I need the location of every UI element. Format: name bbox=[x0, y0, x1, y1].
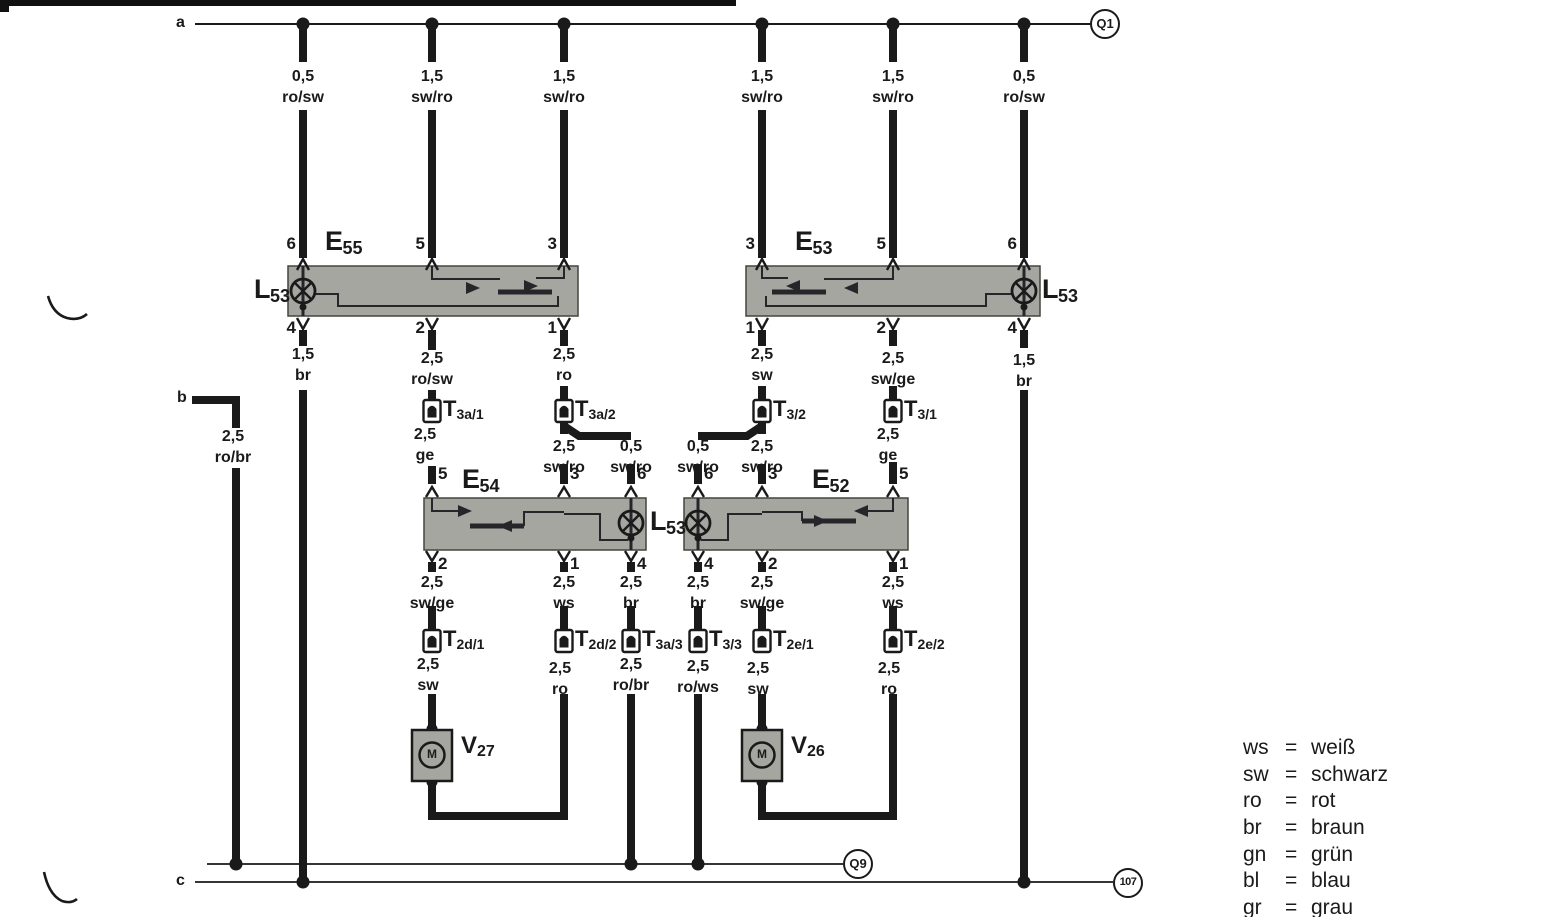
v27-label: V27 bbox=[461, 732, 495, 760]
pin-number: 5 bbox=[877, 234, 886, 254]
component-sub: 54 bbox=[480, 476, 500, 496]
component-sub: 55 bbox=[343, 238, 363, 258]
pin-number: 5 bbox=[438, 464, 447, 484]
wire-gauge: 2,5 bbox=[410, 572, 454, 593]
wire-gauge: 1,5 bbox=[411, 66, 453, 87]
wire-label: 2,5ge bbox=[877, 424, 899, 466]
wire-color: ro/sw bbox=[282, 87, 324, 108]
wire-label: 2,5sw bbox=[747, 658, 769, 700]
wire-color: br bbox=[1013, 371, 1035, 392]
switch-arrows bbox=[458, 280, 868, 532]
wire-color: ro/sw bbox=[1003, 87, 1045, 108]
legend-row: sw=schwarz bbox=[1243, 762, 1388, 789]
pin-number: 4 bbox=[637, 554, 646, 574]
t2d2-connector-symbol bbox=[556, 630, 573, 652]
pin-number: 1 bbox=[570, 554, 579, 574]
t2e2-connector-symbol bbox=[885, 630, 902, 652]
legend-row: gr=grau bbox=[1243, 895, 1388, 917]
wire-gauge: 2,5 bbox=[620, 572, 642, 593]
connector-sub: 3a/3 bbox=[655, 636, 682, 652]
wire-gauge: 0,5 bbox=[677, 436, 719, 457]
t33-connector-symbol bbox=[690, 630, 707, 652]
margin-mark-upper bbox=[48, 296, 87, 319]
wire-color: ge bbox=[877, 445, 899, 466]
component-prefix: E bbox=[812, 464, 830, 494]
wire-label: 2,5ro bbox=[878, 658, 900, 700]
wire-gauge: 0,5 bbox=[282, 66, 324, 87]
wire-label: 1,5br bbox=[1013, 350, 1035, 392]
connector-sub: 3a/1 bbox=[456, 406, 483, 422]
wire-gauge: 2,5 bbox=[215, 426, 251, 447]
wire-gauge: 2,5 bbox=[741, 436, 783, 457]
wire-gauge: 0,5 bbox=[610, 436, 652, 457]
wire-color: sw bbox=[747, 679, 769, 700]
wire-label: 1,5br bbox=[292, 344, 314, 386]
legend-equals: = bbox=[1285, 896, 1311, 917]
pin-number: 5 bbox=[899, 464, 908, 484]
t2d1-label: T2d/1 bbox=[443, 626, 484, 652]
connector-sub: 2e/1 bbox=[786, 636, 813, 652]
wire-label: 2,5ro/br bbox=[613, 654, 649, 696]
wire-gauge: 2,5 bbox=[878, 658, 900, 679]
t32-label: T3/2 bbox=[773, 396, 806, 422]
pin-number: 3 bbox=[570, 464, 579, 484]
legend-equals: = bbox=[1285, 843, 1311, 867]
e54-label: E54 bbox=[462, 464, 500, 495]
wire-color: sw/ro bbox=[543, 87, 585, 108]
v27-motor-letter: M bbox=[417, 747, 447, 761]
wire-color: sw/ge bbox=[410, 593, 454, 614]
pin-number: 6 bbox=[637, 464, 646, 484]
l53-left-label: L53 bbox=[254, 274, 290, 305]
wire-b-feed bbox=[192, 400, 236, 864]
component-sub: 53 bbox=[270, 286, 290, 306]
page-edge-artifact bbox=[0, 0, 736, 6]
wires-thick bbox=[192, 24, 1024, 882]
wire-color: sw/ro bbox=[872, 87, 914, 108]
connector-sub: 2d/1 bbox=[456, 636, 484, 652]
legend-abbr: ro bbox=[1243, 789, 1285, 813]
component-sub: 26 bbox=[807, 743, 825, 760]
wire-gauge: 2,5 bbox=[877, 424, 899, 445]
legend-equals: = bbox=[1285, 763, 1311, 787]
connector-prefix: T bbox=[575, 626, 588, 651]
legend-equals: = bbox=[1285, 789, 1311, 813]
connector-prefix: T bbox=[773, 396, 786, 421]
connector-prefix: T bbox=[709, 626, 722, 651]
component-sub: 53 bbox=[666, 518, 686, 538]
component-prefix: V bbox=[791, 732, 807, 759]
connector-prefix: T bbox=[443, 626, 456, 651]
legend-color-name: braun bbox=[1311, 816, 1365, 840]
pin-number: 6 bbox=[704, 464, 713, 484]
component-prefix: L bbox=[254, 274, 270, 304]
pin-number: 3 bbox=[746, 234, 755, 254]
wire-label: 1,5sw/ro bbox=[543, 66, 585, 108]
wire-gauge: 1,5 bbox=[292, 344, 314, 365]
legend-abbr: gr bbox=[1243, 896, 1285, 917]
legend-row: ro=rot bbox=[1243, 788, 1388, 815]
wire-gauge: 2,5 bbox=[747, 658, 769, 679]
wire-color: sw bbox=[417, 675, 439, 696]
legend-equals: = bbox=[1285, 869, 1311, 893]
wire-label: 1,5sw/ro bbox=[411, 66, 453, 108]
wire-color: ro bbox=[549, 679, 571, 700]
wire-gauge: 2,5 bbox=[543, 436, 585, 457]
wire-label: 2,5sw bbox=[751, 344, 773, 386]
t31-label: T3/1 bbox=[904, 396, 937, 422]
connector-sub: 3a/2 bbox=[588, 406, 615, 422]
e53-label: E53 bbox=[795, 226, 833, 257]
wire-gauge: 2,5 bbox=[549, 658, 571, 679]
wire-gauge: 2,5 bbox=[871, 348, 915, 369]
t33-label: T3/3 bbox=[709, 626, 742, 652]
wire-gauge: 1,5 bbox=[1013, 350, 1035, 371]
v26-motor-letter: M bbox=[747, 747, 777, 761]
wire-label: 0,5ro/sw bbox=[282, 66, 324, 108]
pin-number: 2 bbox=[438, 554, 447, 574]
t2e1-label: T2e/1 bbox=[773, 626, 814, 652]
wire-label: 2,5br bbox=[687, 572, 709, 614]
wire-color: br bbox=[687, 593, 709, 614]
bus-rails bbox=[195, 24, 1113, 882]
wire-label: 2,5br bbox=[620, 572, 642, 614]
wire-color: ws bbox=[553, 593, 575, 614]
v26-label: V26 bbox=[791, 732, 825, 760]
pin-number: 4 bbox=[1008, 318, 1017, 338]
wire-color: sw/ge bbox=[871, 369, 915, 390]
t3a3-connector-symbol bbox=[623, 630, 640, 652]
wire-gauge: 2,5 bbox=[613, 654, 649, 675]
connector-sub: 2d/2 bbox=[588, 636, 616, 652]
component-sub: 52 bbox=[830, 476, 850, 496]
wire-color: br bbox=[292, 365, 314, 386]
pin-number: 6 bbox=[287, 234, 296, 254]
component-prefix: E bbox=[462, 464, 480, 494]
pin-number: 3 bbox=[768, 464, 777, 484]
t3a1-label: T3a/1 bbox=[443, 396, 484, 422]
wire-color: ro bbox=[878, 679, 900, 700]
wire-color: ro/sw bbox=[411, 369, 453, 390]
t2d2-label: T2d/2 bbox=[575, 626, 616, 652]
wire-color: ws bbox=[882, 593, 904, 614]
t3a2-connector-symbol bbox=[556, 400, 573, 422]
wire-label: 2,5ro bbox=[553, 344, 575, 386]
pin-number: 2 bbox=[877, 318, 886, 338]
wiring-diagram-page: a b c Q1 Q9 107 0,5ro/sw 1,5sw/ro 1,5sw/… bbox=[0, 0, 1549, 917]
l53-mid-label: L53 bbox=[650, 506, 686, 537]
legend-row: gn=grün bbox=[1243, 841, 1388, 868]
wire-label: 1,5sw/ro bbox=[741, 66, 783, 108]
wire-label: 2,5ro bbox=[549, 658, 571, 700]
e52-box bbox=[684, 498, 908, 550]
legend-color-name: grau bbox=[1311, 896, 1353, 917]
wire-gauge: 1,5 bbox=[872, 66, 914, 87]
wire-color: ro bbox=[553, 365, 575, 386]
wire-gauge: 2,5 bbox=[740, 572, 784, 593]
connector-sub: 3/3 bbox=[722, 636, 741, 652]
t2e1-connector-symbol bbox=[754, 630, 771, 652]
connector-prefix: T bbox=[443, 396, 456, 421]
rail-c-label: c bbox=[176, 872, 185, 890]
connector-sub: 2e/2 bbox=[917, 636, 944, 652]
wire-gauge: 2,5 bbox=[687, 572, 709, 593]
pin-number: 2 bbox=[768, 554, 777, 574]
component-prefix: E bbox=[795, 226, 813, 256]
terminal-q1-label: Q1 bbox=[1085, 16, 1125, 31]
wire-gauge: 1,5 bbox=[741, 66, 783, 87]
pin-number: 1 bbox=[899, 554, 908, 574]
wire-label: 2,5sw/ge bbox=[410, 572, 454, 614]
legend-color-name: blau bbox=[1311, 869, 1351, 893]
wire-label: 0,5ro/sw bbox=[1003, 66, 1045, 108]
component-sub: 27 bbox=[477, 743, 495, 760]
wire-label: 2,5sw/ge bbox=[871, 348, 915, 390]
page-corner-artifact bbox=[0, 0, 9, 12]
l53-right-label: L53 bbox=[1042, 274, 1078, 305]
wire-gauge: 1,5 bbox=[543, 66, 585, 87]
wire-color: ro/br bbox=[613, 675, 649, 696]
pin-number: 4 bbox=[704, 554, 713, 574]
wire-label: 2,5ro/sw bbox=[411, 348, 453, 390]
wire-gauge: 0,5 bbox=[1003, 66, 1045, 87]
t2e2-label: T2e/2 bbox=[904, 626, 945, 652]
rail-b-label: b bbox=[177, 389, 187, 407]
component-prefix: L bbox=[1042, 274, 1058, 304]
wire-label: 2,5ge bbox=[414, 424, 436, 466]
wire-branch-right bbox=[698, 426, 762, 436]
wire-label: 2,5ws bbox=[553, 572, 575, 614]
legend-equals: = bbox=[1285, 816, 1311, 840]
pin-number: 1 bbox=[548, 318, 557, 338]
wire-color: sw bbox=[751, 365, 773, 386]
wire-gauge: 2,5 bbox=[553, 572, 575, 593]
wire-label: 2,5sw/ge bbox=[740, 572, 784, 614]
wire-gauge: 2,5 bbox=[751, 344, 773, 365]
pin-number: 3 bbox=[548, 234, 557, 254]
e52-label: E52 bbox=[812, 464, 850, 495]
pin-number: 6 bbox=[1008, 234, 1017, 254]
t32-connector-symbol bbox=[754, 400, 771, 422]
connector-sub: 3/2 bbox=[786, 406, 805, 422]
t2d1-connector-symbol bbox=[424, 630, 441, 652]
t3a1-connector-symbol bbox=[424, 400, 441, 422]
legend-row: br=braun bbox=[1243, 815, 1388, 842]
wire-label: 2,5ws bbox=[882, 572, 904, 614]
wire-color: ro/ws bbox=[677, 677, 719, 698]
connector-sub: 3/1 bbox=[917, 406, 936, 422]
component-prefix: E bbox=[325, 226, 343, 256]
e54-box bbox=[424, 498, 646, 550]
legend-color-name: weiß bbox=[1311, 736, 1355, 760]
connector-prefix: T bbox=[904, 626, 917, 651]
wire-color: ge bbox=[414, 445, 436, 466]
component-sub: 53 bbox=[813, 238, 833, 258]
wire-color: sw/ge bbox=[740, 593, 784, 614]
connector-prefix: T bbox=[773, 626, 786, 651]
legend-abbr: bl bbox=[1243, 869, 1285, 893]
legend-abbr: sw bbox=[1243, 763, 1285, 787]
connector-prefix: T bbox=[642, 626, 655, 651]
wire-color: sw/ro bbox=[411, 87, 453, 108]
legend-color-name: rot bbox=[1311, 789, 1336, 813]
wire-label: 1,5sw/ro bbox=[872, 66, 914, 108]
wire-color: ro/br bbox=[215, 447, 251, 468]
wire-gauge: 2,5 bbox=[417, 654, 439, 675]
legend-abbr: ws bbox=[1243, 736, 1285, 760]
component-prefix: L bbox=[650, 506, 666, 536]
wire-color: sw/ro bbox=[741, 87, 783, 108]
wire-color: br bbox=[620, 593, 642, 614]
color-legend: ws=weiß sw=schwarz ro=rot br=braun gn=gr… bbox=[1243, 735, 1388, 917]
wire-label: 2,5ro/br bbox=[215, 426, 251, 468]
wire-gauge: 2,5 bbox=[414, 424, 436, 445]
wire-gauge: 2,5 bbox=[553, 344, 575, 365]
t31-connector-symbol bbox=[885, 400, 902, 422]
rail-a-label: a bbox=[176, 14, 185, 32]
terminal-107-label: 107 bbox=[1108, 876, 1148, 888]
wire-gauge: 2,5 bbox=[882, 572, 904, 593]
legend-abbr: br bbox=[1243, 816, 1285, 840]
terminal-q9-label: Q9 bbox=[838, 856, 878, 871]
wire-branch-left bbox=[564, 426, 631, 436]
pin-number: 5 bbox=[416, 234, 425, 254]
legend-equals: = bbox=[1285, 736, 1311, 760]
legend-row: ws=weiß bbox=[1243, 735, 1388, 762]
wire-gauge: 2,5 bbox=[411, 348, 453, 369]
connector-prefix: T bbox=[575, 396, 588, 421]
pin-number: 1 bbox=[746, 318, 755, 338]
e55-label: E55 bbox=[325, 226, 363, 257]
wire-label: 2,5ro/ws bbox=[677, 656, 719, 698]
legend-color-name: schwarz bbox=[1311, 763, 1388, 787]
wire-gauge: 2,5 bbox=[677, 656, 719, 677]
pin-number: 4 bbox=[287, 318, 296, 338]
component-sub: 53 bbox=[1058, 286, 1078, 306]
t3a2-label: T3a/2 bbox=[575, 396, 616, 422]
connector-prefix: T bbox=[904, 396, 917, 421]
component-prefix: V bbox=[461, 732, 477, 759]
margin-mark-lower bbox=[44, 872, 77, 902]
pin-number: 2 bbox=[416, 318, 425, 338]
wire-label: 2,5sw bbox=[417, 654, 439, 696]
t3a3-label: T3a/3 bbox=[642, 626, 683, 652]
legend-row: bl=blau bbox=[1243, 868, 1388, 895]
legend-abbr: gn bbox=[1243, 843, 1285, 867]
legend-color-name: grün bbox=[1311, 843, 1353, 867]
